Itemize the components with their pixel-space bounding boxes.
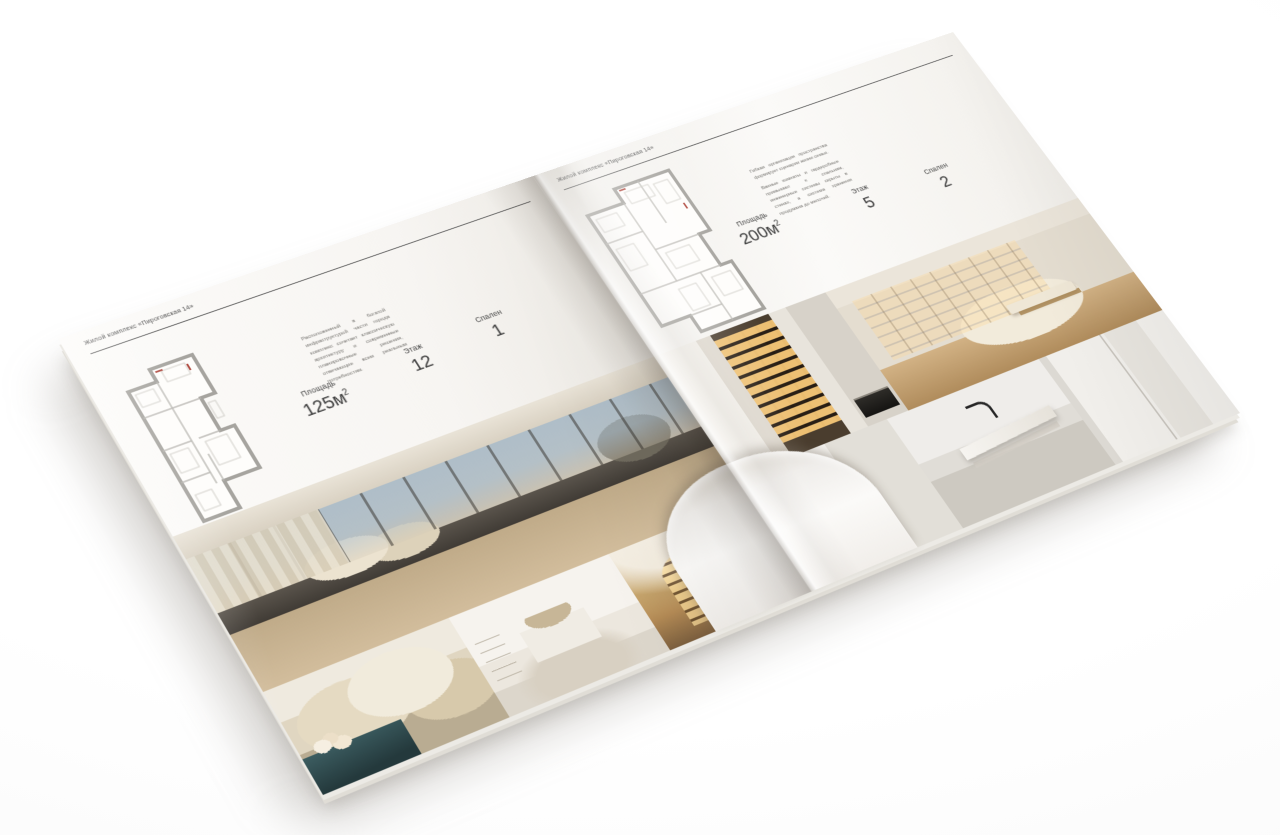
stat-area: Площадь 125м2: [282, 372, 367, 425]
stat-bedrooms: Спален 1: [454, 301, 536, 352]
mockup-stage: Жилой комплекс «Пироговская 14» Располож…: [0, 0, 1280, 835]
stat-bedrooms: Спален 2: [905, 155, 980, 201]
running-head: Жилой комплекс «Пироговская 14»: [83, 304, 195, 347]
